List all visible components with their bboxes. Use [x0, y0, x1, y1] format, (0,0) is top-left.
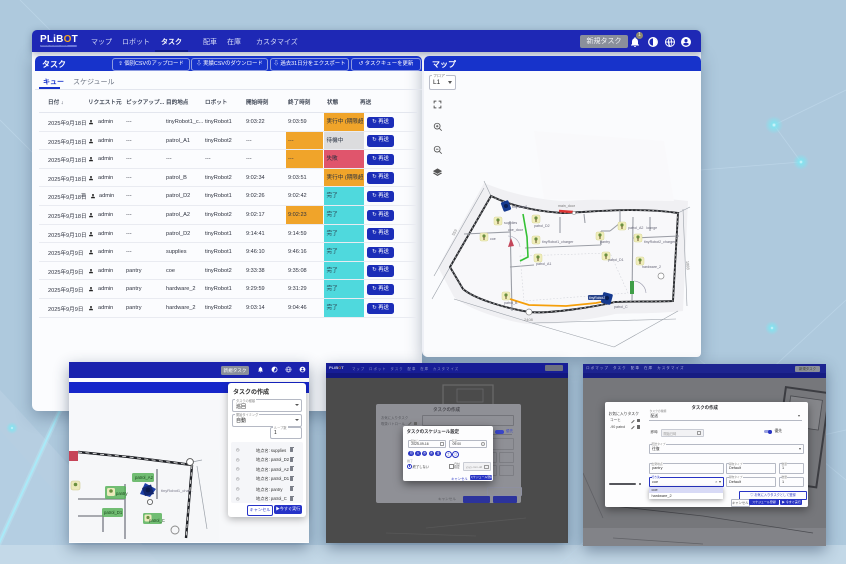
- svg-text:patrol_A1: patrol_A1: [536, 262, 551, 266]
- svg-text:patrol_D2: patrol_D2: [534, 224, 550, 228]
- svg-text:pantry: pantry: [600, 240, 610, 244]
- svg-text:patrol_C: patrol_C: [614, 305, 628, 309]
- svg-text:tinyRobot1_charger: tinyRobot1_charger: [542, 240, 574, 244]
- svg-text:2408: 2408: [524, 317, 534, 322]
- svg-text:patrol_D1: patrol_D1: [104, 510, 123, 515]
- svg-text:pantry: pantry: [116, 491, 129, 496]
- svg-text:tinyRobot1_char...: tinyRobot1_char...: [161, 488, 193, 493]
- svg-text:main_door: main_door: [558, 204, 576, 208]
- svg-text:tinyRobot2_charger: tinyRobot2_charger: [644, 240, 676, 244]
- svg-text:tinyrobot1: tinyrobot1: [512, 205, 528, 209]
- svg-text:hardware_2: hardware_2: [642, 265, 661, 269]
- svg-text:patrol_C: patrol_C: [149, 518, 165, 523]
- svg-text:supplies: supplies: [504, 221, 517, 225]
- svg-text:coe: coe: [490, 237, 496, 241]
- svg-text:patrol_A2: patrol_A2: [135, 475, 154, 480]
- svg-text:patrol_D1: patrol_D1: [608, 258, 624, 262]
- svg-text:patrol_A2 lounge: patrol_A2 lounge: [628, 226, 657, 230]
- svg-text:1888: 1888: [685, 261, 691, 271]
- svg-text:patrol_B: patrol_B: [504, 301, 518, 305]
- svg-text:tinyRobot2: tinyRobot2: [589, 296, 605, 300]
- svg-text:coe_door: coe_door: [508, 228, 524, 232]
